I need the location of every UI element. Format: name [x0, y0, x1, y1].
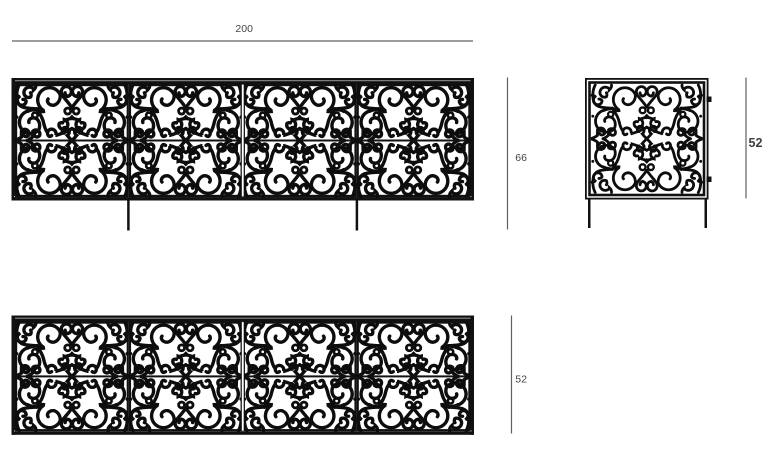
svg-text:52: 52 — [749, 136, 763, 150]
svg-text:200: 200 — [235, 23, 253, 35]
svg-text:66: 66 — [515, 152, 527, 164]
svg-text:52: 52 — [515, 374, 527, 386]
